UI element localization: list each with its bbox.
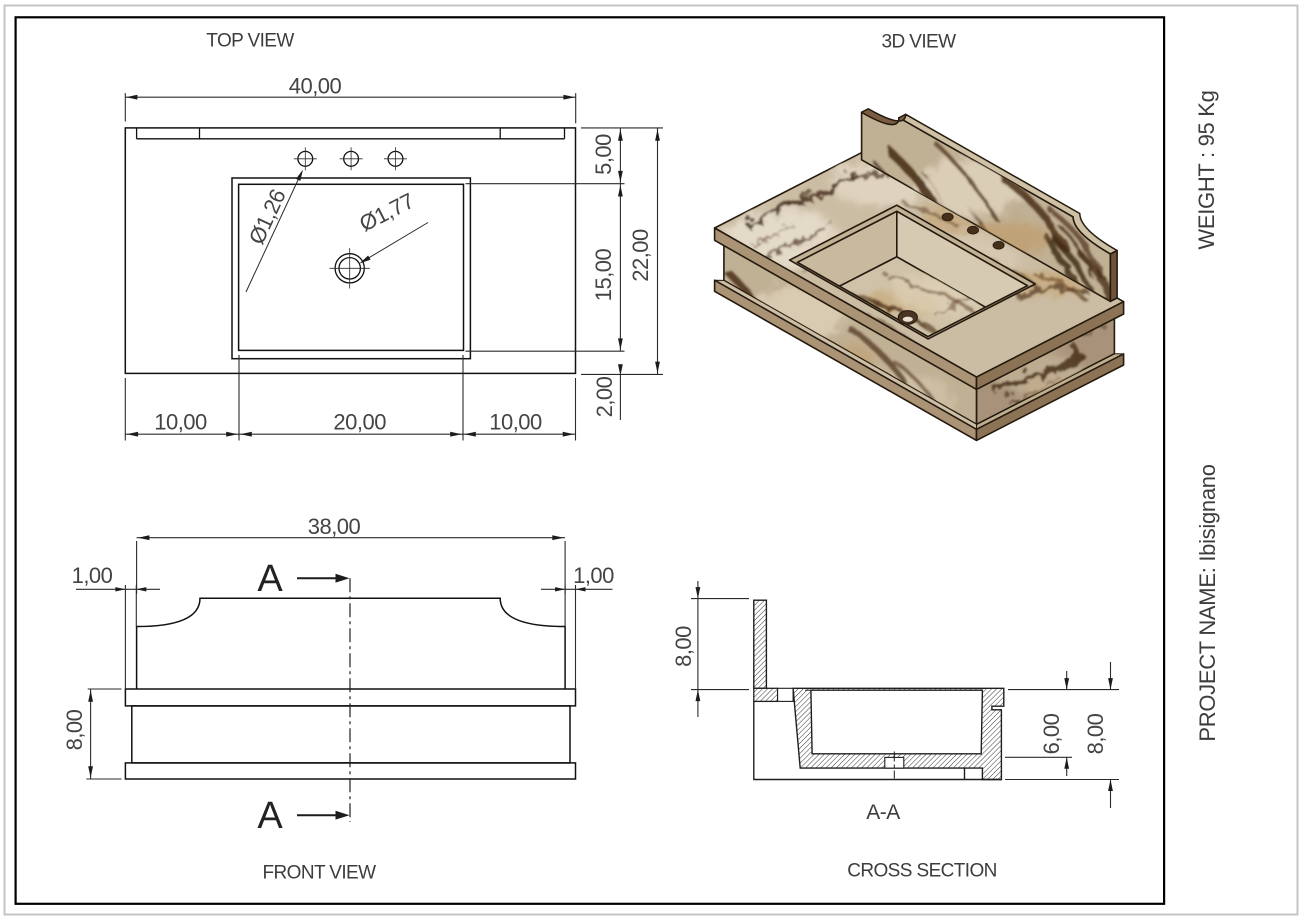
svg-text:2,00: 2,00	[592, 376, 617, 417]
svg-text:3D VIEW: 3D VIEW	[882, 32, 957, 53]
svg-text:1,00: 1,00	[573, 563, 614, 588]
svg-text:1,00: 1,00	[72, 563, 113, 588]
svg-text:TOP VIEW: TOP VIEW	[206, 31, 294, 52]
svg-text:10,00: 10,00	[489, 410, 542, 435]
svg-text:15,00: 15,00	[591, 248, 616, 301]
svg-text:8,00: 8,00	[671, 626, 696, 667]
svg-text:5,00: 5,00	[591, 134, 616, 175]
svg-text:FRONT VIEW: FRONT VIEW	[263, 863, 377, 884]
svg-text:A: A	[257, 558, 283, 600]
svg-text:10,00: 10,00	[154, 410, 207, 435]
svg-text:40,00: 40,00	[289, 73, 342, 98]
svg-text:PROJECT NAME: Ibisignano: PROJECT NAME: Ibisignano	[1195, 464, 1220, 741]
svg-text:38,00: 38,00	[308, 514, 361, 539]
svg-text:20,00: 20,00	[333, 410, 386, 435]
svg-text:CROSS SECTION: CROSS SECTION	[847, 861, 997, 882]
svg-text:8,00: 8,00	[1083, 713, 1108, 754]
svg-text:6,00: 6,00	[1039, 713, 1064, 754]
svg-text:A-A: A-A	[866, 801, 900, 824]
svg-text:WEIGHT : 95 Kg: WEIGHT : 95 Kg	[1194, 90, 1219, 249]
svg-text:A: A	[257, 795, 283, 837]
svg-text:22,00: 22,00	[628, 229, 653, 282]
svg-text:8,00: 8,00	[62, 709, 87, 750]
